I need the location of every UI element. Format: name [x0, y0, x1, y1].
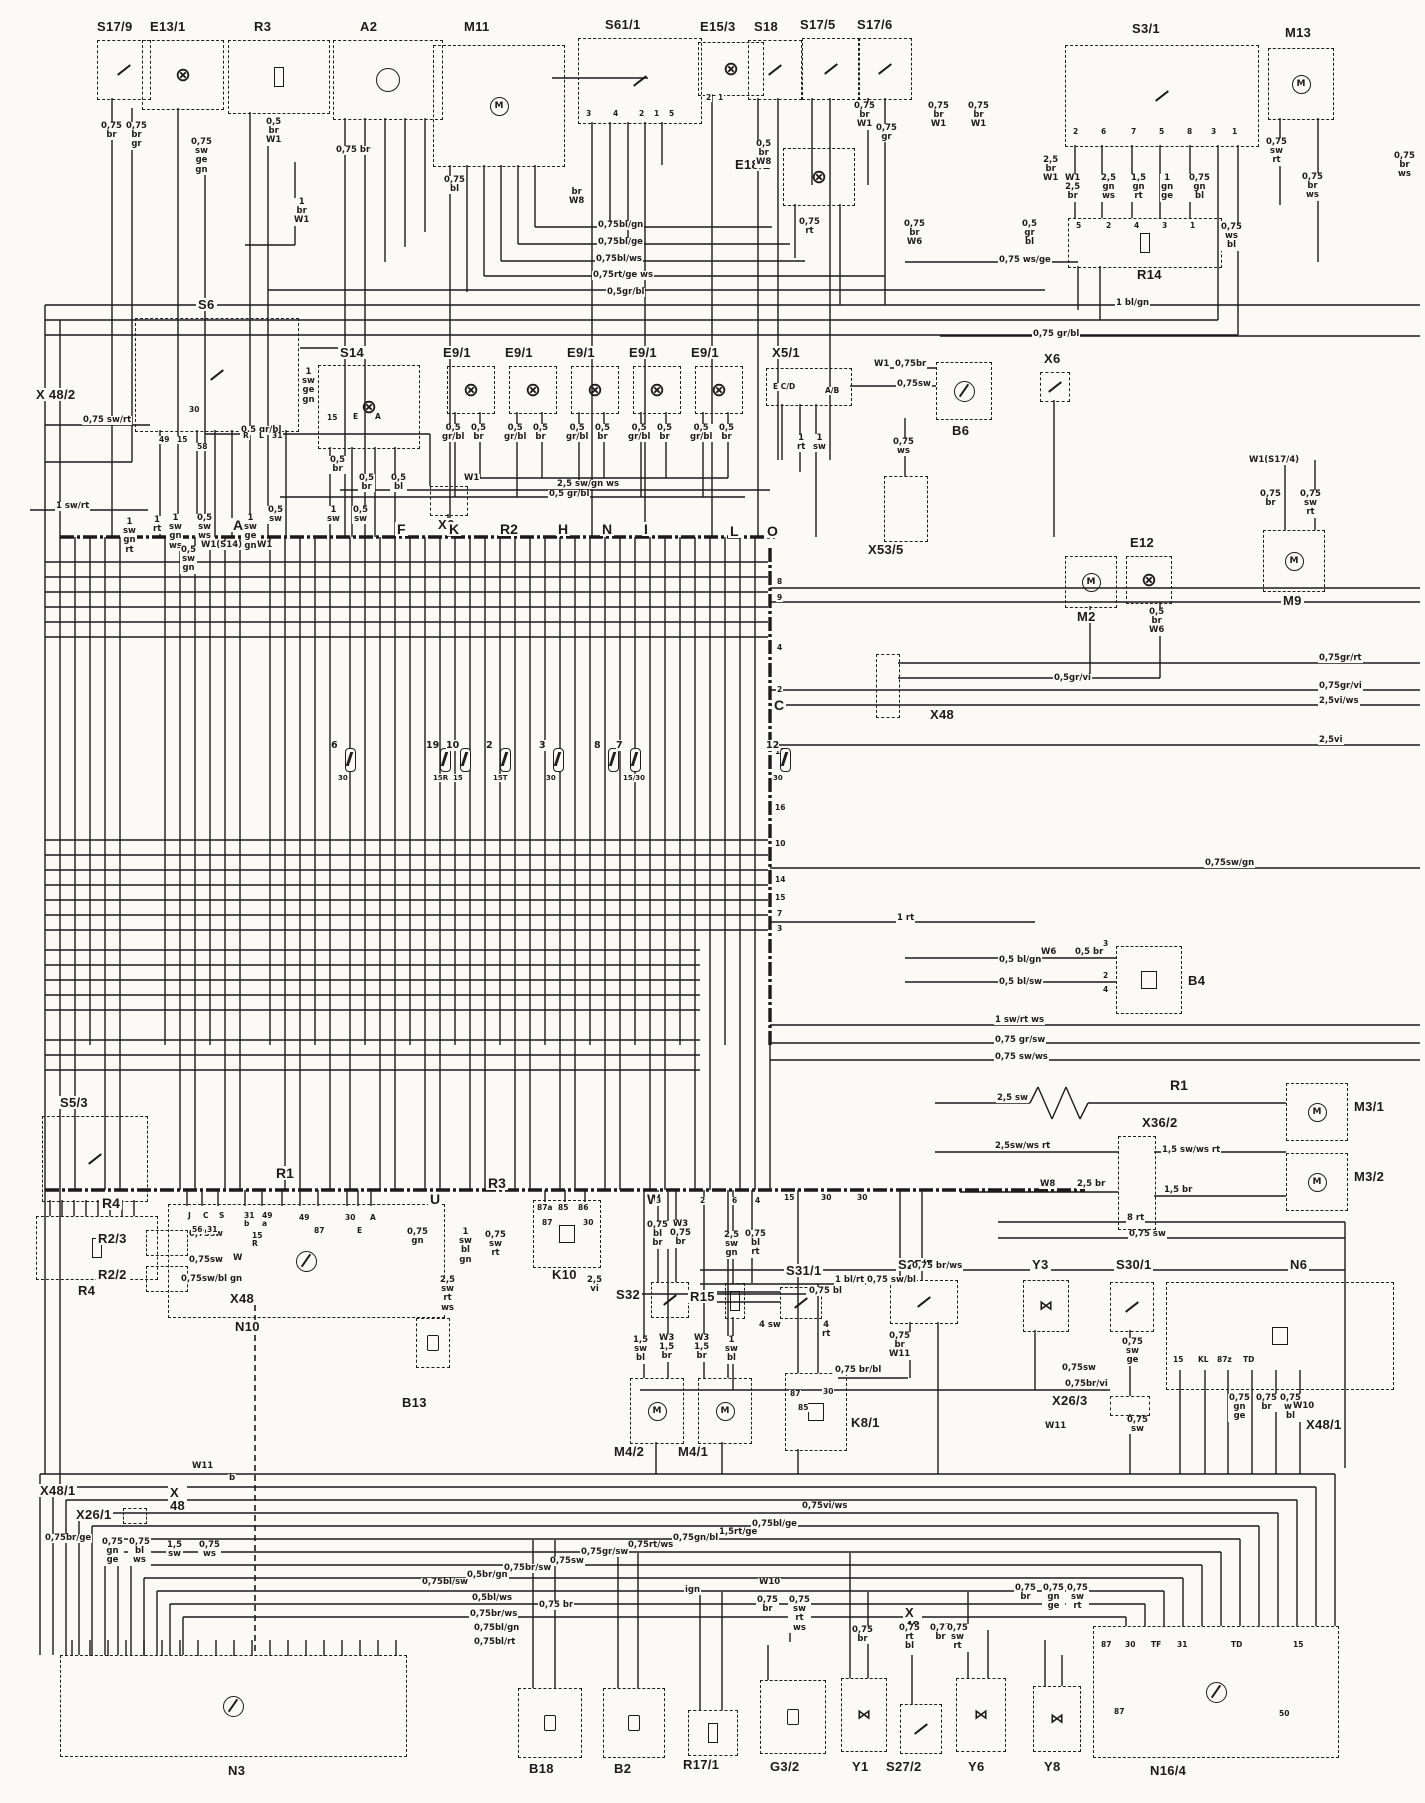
sensor-icon	[787, 1709, 799, 1725]
component-label-M11: M11	[462, 20, 491, 33]
fuse-8: 8	[608, 748, 619, 772]
diagram-label-r1: R1	[274, 1166, 296, 1180]
wire-label: 0,75 sw/ws	[994, 1053, 1049, 1062]
wire-label: 0,5 bl	[390, 474, 407, 492]
wire-label: 0,75 br/bl	[834, 1366, 882, 1375]
wire-label: 0,75 gr	[875, 124, 898, 142]
wire-label: 0,75 sw rt	[946, 1624, 969, 1652]
wire-label: 0,5 sw ws	[196, 514, 213, 542]
wire-label: 0,75 br	[1259, 490, 1282, 508]
resistor-icon	[730, 1291, 740, 1311]
component-label-X36-2: X36/2	[1140, 1116, 1179, 1129]
component-label-S17-5: S17/5	[798, 18, 837, 31]
pin-label: 87a	[536, 1204, 554, 1212]
wire-label: 0,75 br ws	[1393, 152, 1416, 180]
wire-label: W1 2,5 br	[1064, 174, 1081, 202]
component-label-R2-3: R2/3	[96, 1232, 129, 1245]
wire-label: 0,75 ws/ge	[998, 256, 1052, 265]
component-label-K10: K10	[550, 1268, 579, 1281]
component-box-S30-1	[1110, 1282, 1154, 1332]
pin-label: 30	[582, 1219, 594, 1227]
pin-label: 8	[1186, 128, 1193, 136]
wire-label: 0,75 sw ge gn	[190, 138, 213, 175]
diagram-label-x48: X48	[228, 1292, 256, 1305]
pin-label: 6	[1100, 128, 1107, 136]
pin-label: 87	[1113, 1708, 1125, 1716]
component-label-X5-1: X5/1	[770, 346, 802, 359]
component-label-M3-1: M3/1	[1352, 1100, 1386, 1113]
component-box-S6	[135, 318, 299, 432]
pin-label: 5	[1075, 222, 1082, 230]
component-box-B6	[936, 362, 992, 420]
relay-icon	[1272, 1327, 1288, 1345]
switch-icon	[1155, 90, 1169, 101]
pin-label: 9	[776, 594, 783, 602]
wire-label: 0,75 br W1	[853, 102, 876, 130]
pin-label: 49 a	[261, 1212, 273, 1227]
diagram-label-r3: R3	[486, 1176, 508, 1190]
wire-label: W3 1,5 br	[693, 1334, 710, 1362]
lamp-icon: ⊗	[463, 381, 479, 400]
pin-label: C	[202, 1212, 210, 1220]
diagram-label-k: K	[447, 522, 461, 536]
component-box-B4	[1116, 946, 1182, 1014]
pin-label: 2	[699, 1197, 706, 1205]
pin-label: R	[242, 432, 250, 440]
component-box-X53-5	[884, 476, 928, 542]
lamp-icon: ⊗	[525, 381, 541, 400]
component-box-N3	[60, 1655, 407, 1757]
wire-label: 0,75 br	[851, 1626, 874, 1644]
wire-label: 0,75 bl br	[646, 1221, 669, 1249]
pin-label: E	[356, 1227, 363, 1235]
wire-label: 1,5 sw bl	[632, 1336, 649, 1364]
wire-label: W1	[256, 541, 273, 550]
wire-label: 2,5 sw gn	[723, 1231, 740, 1259]
pin-label: 15	[326, 414, 338, 422]
motor-icon: M	[1082, 573, 1101, 592]
component-label-S32: S32	[614, 1288, 642, 1301]
wire-label: 0,75 br/ws	[911, 1262, 963, 1271]
component-label-R4blk: R4	[76, 1284, 97, 1297]
component-label-S3-1: S3/1	[1130, 22, 1162, 35]
wire-label: 8 rt	[1126, 1214, 1145, 1223]
lamp-icon: ⊗	[175, 66, 191, 85]
pin-label: 4	[612, 110, 619, 118]
wire-label: 0,75vi/ws	[801, 1502, 848, 1511]
motor-icon: M	[716, 1402, 735, 1421]
component-box-M9: M	[1263, 530, 1325, 592]
wire-label: 1 sw	[326, 506, 341, 524]
wire-label: 0,5 br	[329, 456, 346, 474]
pin-label: 4	[1133, 222, 1140, 230]
wire-label: 1 sw bl	[724, 1336, 739, 1364]
component-box-S25-5	[890, 1280, 958, 1324]
switch-icon	[117, 64, 131, 75]
wire-label: 1 sw bl gn	[458, 1228, 473, 1265]
wire-label: 0,75 sw rt	[484, 1231, 507, 1259]
wire-label: 0,75 br W1	[967, 102, 990, 130]
component-box-S27-2	[900, 1704, 942, 1754]
component-box-E9-1e: ⊗	[695, 366, 743, 414]
wire-label: 0,75sw	[188, 1256, 224, 1265]
component-box-S17-5	[802, 38, 860, 100]
wire-label: 0,75 gr/sw	[994, 1036, 1046, 1045]
pin-label: 3	[655, 1197, 662, 1205]
pin-label: 5	[668, 110, 675, 118]
wire-label: W1(S14)	[200, 541, 243, 550]
pin-label: 31	[1176, 1641, 1188, 1649]
component-label-E9-1e: E9/1	[689, 346, 721, 359]
diagram-label-o: O	[765, 524, 780, 538]
component-label-M9: M9	[1281, 594, 1304, 607]
wire-label: 0,75 br W6	[903, 220, 926, 248]
wire-label: 0,75 gn	[406, 1228, 429, 1246]
wire-label: 0,75 sw rt	[1299, 490, 1322, 518]
wire-label: br W8	[568, 188, 585, 206]
fuse-number: 3	[539, 740, 546, 751]
wire-label: 0,5 bl/gn	[998, 956, 1042, 965]
fuse-rating: 15T	[493, 774, 508, 782]
wire-label: 0,75br/ws	[469, 1610, 518, 1619]
wire-label: 0,5 br	[1074, 948, 1104, 957]
wire-label: W3 0,75 br	[669, 1220, 692, 1248]
component-box-M4-1: M	[698, 1378, 752, 1444]
component-label-E9-1b: E9/1	[503, 346, 535, 359]
component-box-M3-1: M	[1286, 1083, 1348, 1141]
switch-icon	[633, 75, 647, 86]
pin-label: 30	[856, 1194, 868, 1202]
pin-label: J	[187, 1212, 192, 1220]
pin-label: KL	[1197, 1356, 1210, 1364]
wire-label: 1 rt	[796, 434, 806, 452]
wire-label: 1 rt	[896, 914, 915, 923]
pin-label: TD	[1230, 1641, 1243, 1649]
pin-label: 1	[1231, 128, 1238, 136]
fuse-3: 330	[553, 748, 564, 772]
wire-label: 0,5 br	[656, 424, 673, 442]
wire-label: 0,75gn/bl	[672, 1534, 719, 1543]
component-label-Y1: Y1	[850, 1760, 871, 1773]
component-label-N10: N10	[233, 1320, 262, 1333]
wire-label: 0,75 br	[538, 1601, 574, 1610]
wire-label: 0,5 gr bl	[1021, 220, 1038, 248]
component-label-S14: S14	[338, 346, 366, 359]
pin-label: 2	[776, 686, 783, 694]
component-box-M3-2: M	[1286, 1153, 1348, 1211]
diagram-label-f: F	[395, 522, 408, 536]
wire-label: 0,75 br	[335, 146, 371, 155]
pin-label: TD	[1242, 1356, 1255, 1364]
wire-label: 0,75 br ws	[1301, 173, 1324, 201]
wire-label: 0,5 bl/sw	[998, 978, 1043, 987]
component-label-M4-1: M4/1	[676, 1445, 710, 1458]
component-box-E9-1c: ⊗	[571, 366, 619, 414]
pump-icon	[296, 1251, 317, 1272]
component-box-S5-3	[42, 1116, 148, 1202]
wire-label: 0,5bl/ws	[471, 1594, 513, 1603]
wire-label: 0,5 sw	[352, 506, 369, 524]
wire-label: W1	[873, 360, 890, 369]
motor-icon: M	[1285, 552, 1304, 571]
wire-label: 0,5 br W6	[1148, 608, 1165, 636]
wire-label: 1,5rt/ge	[718, 1528, 758, 1537]
wire-label: 2,5 sw	[996, 1094, 1029, 1103]
pin-label: 15	[176, 436, 188, 444]
component-box-E9-1d: ⊗	[633, 366, 681, 414]
component-label-S18: S18	[752, 20, 780, 33]
wire-label: 0,5gr/bl	[606, 288, 645, 297]
pin-label: 49	[158, 436, 170, 444]
pin-label: 3	[1210, 128, 1217, 136]
diagram-label-u: U	[428, 1192, 442, 1206]
component-label-N3: N3	[226, 1764, 247, 1777]
pin-label: 14	[774, 876, 786, 884]
pin-label: 87	[1100, 1641, 1112, 1649]
wire-label: 0,75br	[894, 360, 927, 369]
fuse-6: 630	[345, 748, 356, 772]
component-label-N6: N6	[1288, 1258, 1309, 1271]
pin-label: 6	[731, 1197, 738, 1205]
pin-label: 10	[774, 840, 786, 848]
sensor-icon	[628, 1715, 640, 1731]
wire-label: W8	[1039, 1180, 1056, 1189]
relay-icon	[1141, 971, 1157, 989]
wire-label: W11	[1044, 1422, 1067, 1431]
wire-label: 0,75bl/ge	[597, 238, 644, 247]
wire-label: 0,75gr/rt	[1318, 654, 1363, 663]
motor-icon: M	[1308, 1103, 1327, 1122]
component-box-X26-3	[1110, 1396, 1150, 1416]
fuse-2: 215T	[500, 748, 511, 772]
diagram-label-r1: R1	[1168, 1078, 1190, 1092]
wire-label: 0,75 bl ws	[128, 1538, 151, 1566]
wire-label: 0,5 br	[594, 424, 611, 442]
component-label-E9-1c: E9/1	[565, 346, 597, 359]
component-box-Y8: ⋈	[1033, 1686, 1081, 1752]
pin-label: 4	[1102, 986, 1109, 994]
pin-label: 15	[783, 1194, 795, 1202]
component-box-R3	[228, 40, 330, 114]
switch-icon	[878, 63, 892, 74]
wire-label: 1 rt	[152, 516, 162, 534]
wire-label: W6	[1040, 948, 1057, 957]
pin-label: 3	[1102, 940, 1109, 948]
component-label-M13: M13	[1283, 26, 1313, 39]
wire-label: 1 br W1	[293, 198, 310, 226]
alternator-icon	[376, 68, 400, 92]
wire-label: 0,75 bl	[808, 1287, 843, 1296]
valve-icon: ⋈	[974, 1708, 988, 1722]
wire-label: 0,75br/sw	[503, 1564, 552, 1573]
switch-icon	[768, 64, 782, 75]
wire-label: 0,5br/gn	[466, 1571, 509, 1580]
component-box-M13: M	[1268, 48, 1334, 120]
fuse-number: 19	[426, 740, 439, 751]
fuse-number: 7	[616, 740, 623, 751]
component-box-S32	[651, 1282, 689, 1318]
component-label-X26-3: X26/3	[1050, 1394, 1089, 1407]
switch-icon	[210, 369, 224, 380]
wire-label: 1 gn ge	[1160, 174, 1174, 202]
component-label-R14: R14	[1135, 268, 1164, 281]
component-label-E9-1d: E9/1	[627, 346, 659, 359]
component-box-M11: M	[433, 45, 565, 167]
component-box-S18	[748, 40, 802, 100]
wire-label: 0,75 gn ge	[101, 1538, 124, 1566]
pin-label: 85	[797, 1404, 809, 1412]
pin-label: S	[218, 1212, 225, 1220]
pin-label: 15 R	[251, 1232, 263, 1247]
component-label-M2: M2	[1075, 610, 1098, 623]
pin-label: 2	[638, 110, 645, 118]
lamp-icon: ⊗	[587, 381, 603, 400]
pin-label: 1	[1189, 222, 1196, 230]
fuse-10: 1015	[460, 748, 471, 772]
diagram-label-c: C	[772, 698, 786, 712]
diagram-label-h: H	[556, 522, 570, 536]
pump-icon	[1206, 1682, 1227, 1703]
wire-label: W10	[758, 1578, 781, 1587]
pin-label: 2	[1072, 128, 1079, 136]
fuse-12: 1230	[780, 748, 791, 772]
component-label-B13: B13	[400, 1396, 429, 1409]
pin-label: 58	[196, 443, 208, 451]
wire-label: W1(S17/4)	[1248, 456, 1300, 465]
component-box-Y6: ⋈	[956, 1678, 1006, 1752]
pin-label: L	[258, 432, 265, 440]
wire-label: 0,75bl/gn	[597, 221, 644, 230]
diagram-label-r4: R4	[100, 1196, 122, 1210]
component-label-S61-1: S61/1	[603, 18, 642, 31]
pin-label: 50	[1278, 1710, 1290, 1718]
pump-icon	[954, 381, 975, 402]
component-label-A2: A2	[358, 20, 379, 33]
wire-label: 0,75 sw rt	[1066, 1584, 1089, 1612]
component-label-Y8: Y8	[1042, 1760, 1063, 1773]
component-label-X26-1: X26/1	[74, 1508, 113, 1521]
diagram-label-l: L	[728, 524, 741, 538]
wire-label: 1 sw ge gn	[301, 368, 316, 405]
component-box-B18	[518, 1688, 582, 1758]
wire-label: 0,75 gn bl	[1188, 174, 1211, 202]
wire-label: 0,75 br gr	[125, 122, 148, 150]
pin-label: 49	[298, 1214, 310, 1222]
wire-label: 0,5 gr/bl	[548, 490, 590, 499]
wire-label: 0,75 sw/bl	[866, 1276, 917, 1285]
motor-icon: M	[648, 1402, 667, 1421]
fuse-number: 2	[486, 740, 493, 751]
component-label-X6R: X6	[1042, 352, 1063, 365]
pin-label: 1	[717, 94, 724, 102]
wiring-diagram-canvas: S17/9⊗E13/1R3A2MM11S61/1⊗E15/3S18S17/5S1…	[0, 0, 1425, 1803]
resistor-icon	[1140, 233, 1150, 253]
component-label-Y6: Y6	[966, 1760, 987, 1773]
wire-label: 2,5 br W1	[1042, 156, 1059, 184]
switch-icon	[914, 1723, 928, 1734]
wire-label: 0,75 bl rt	[744, 1230, 767, 1258]
wire-label: 0,5gr/vi	[1053, 674, 1092, 683]
wire-label: 0,5 br	[470, 424, 487, 442]
wire-label: 2,5sw/ws rt	[994, 1142, 1051, 1151]
diagram-label-x-48-2: X 48/2	[34, 388, 77, 401]
wire-label: 2,5 vi	[586, 1276, 603, 1294]
wire-label: 0,75 rt bl	[898, 1624, 921, 1652]
fuse-19: 1915R	[440, 748, 451, 772]
relay-icon	[559, 1225, 575, 1243]
wire-label: 1 bl/gn	[1115, 299, 1150, 308]
diagram-label-x48-1: X48/1	[38, 1484, 77, 1497]
wire-label: 0,75 sw ge	[1121, 1338, 1144, 1366]
wire-label: 0,75gr/sw	[580, 1548, 629, 1557]
pump-icon	[223, 1696, 244, 1717]
component-box-B13	[416, 1318, 450, 1368]
component-box-N6	[1166, 1282, 1394, 1390]
component-box-B2	[603, 1688, 665, 1758]
resistor-icon	[708, 1723, 718, 1743]
sensor-icon	[544, 1715, 556, 1731]
pin-label: 3	[585, 110, 592, 118]
fuse-rating: 15/30	[623, 774, 645, 782]
pin-label: 15	[1292, 1641, 1304, 1649]
wire-label: 1 sw gn rt	[122, 518, 137, 555]
wire-label: 0,75 ws	[892, 438, 915, 456]
component-label-E9-1a: E9/1	[441, 346, 473, 359]
component-label-M3-2: M3/2	[1352, 1170, 1386, 1183]
wire-label: W	[232, 1254, 243, 1263]
fuse-number: 6	[331, 740, 338, 751]
pin-label: 7	[776, 910, 783, 918]
wire-label: 0,75 ws bl	[1220, 223, 1243, 251]
wire-label: 1,5 br	[1163, 1186, 1193, 1195]
pin-label: A	[369, 1214, 377, 1222]
motor-icon: M	[1292, 75, 1311, 94]
pin-label: 30	[188, 406, 200, 414]
lamp-icon: ⊗	[649, 381, 665, 400]
pin-label: 3	[1161, 222, 1168, 230]
fuse-rating: 30	[773, 774, 783, 782]
wire-label: 0,75 br	[756, 1596, 779, 1614]
wire-label: 0,75sw/gn	[1204, 859, 1255, 868]
component-box-K8-1	[785, 1373, 847, 1451]
wire-label: 0,75bl/gn	[473, 1624, 520, 1633]
wire-label: 0,75 gn ge	[1228, 1394, 1251, 1422]
wire-label: 0,75br/ge	[44, 1534, 92, 1543]
wire-label: 0,75 gr/bl	[1032, 330, 1080, 339]
component-label-E13-1: E13/1	[148, 20, 187, 33]
component-box-M2: M	[1065, 556, 1117, 608]
component-label-N16-4: N16/4	[1148, 1764, 1188, 1777]
wire-label: 0,75bl/ws	[595, 255, 643, 264]
pin-label: E C/D	[772, 383, 796, 391]
lamp-icon: ⊗	[723, 60, 739, 79]
component-label-S17-9: S17/9	[95, 20, 134, 33]
pin-label: 56	[191, 1226, 203, 1234]
component-box-R17-1	[688, 1710, 738, 1756]
wire-label: 0,75 sw rt ws	[788, 1596, 811, 1633]
component-box-M4-2: M	[630, 1378, 684, 1444]
wire-label: 0,75 br W1	[927, 102, 950, 130]
wire-label: 4 rt	[821, 1321, 831, 1339]
pin-label: 3	[776, 925, 783, 933]
wire-label: 0,75rt/ws	[627, 1541, 674, 1550]
wire-label: 1 sw	[812, 434, 827, 452]
component-label-E15-3: E15/3	[698, 20, 737, 33]
component-box-S17-6	[858, 38, 912, 100]
wire-label: 0,5 gr/bl	[503, 424, 527, 442]
valve-icon: ⋈	[1039, 1299, 1053, 1313]
pin-label: 15	[1172, 1356, 1184, 1364]
